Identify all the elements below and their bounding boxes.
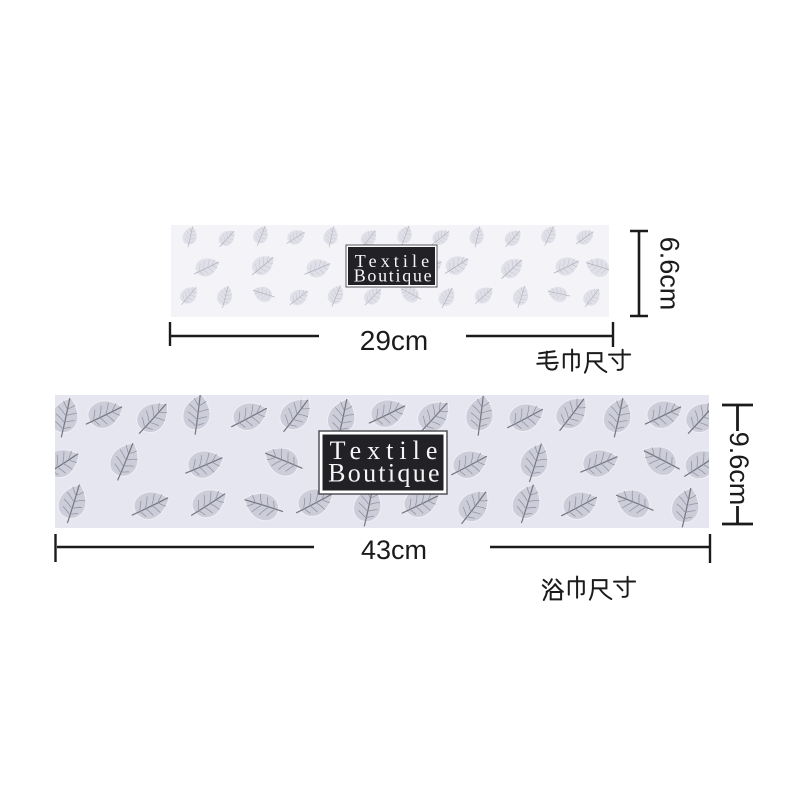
svg-text:Boutique: Boutique xyxy=(354,265,434,285)
svg-text:Boutique: Boutique xyxy=(328,459,442,488)
svg-text:29cm: 29cm xyxy=(360,325,428,356)
svg-text:6.6cm: 6.6cm xyxy=(654,237,684,311)
svg-text:9.6cm: 9.6cm xyxy=(724,432,754,506)
svg-text:43cm: 43cm xyxy=(361,535,427,565)
